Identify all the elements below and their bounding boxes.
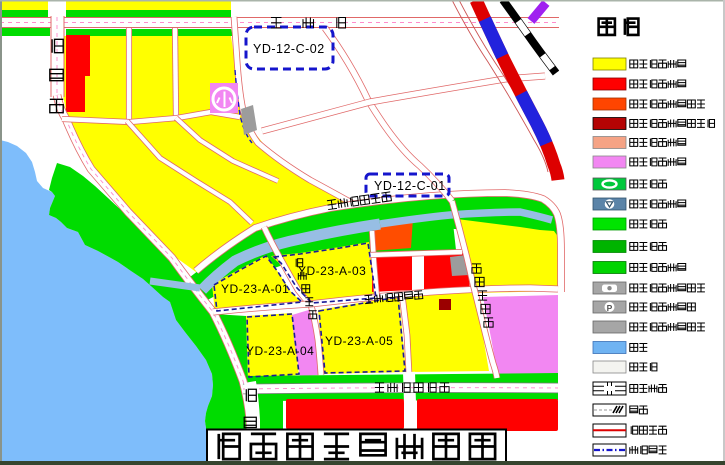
svg-text:P: P: [607, 303, 613, 313]
svg-text:YD-23-A-04: YD-23-A-04: [246, 344, 314, 358]
svg-text:YD-23-A-01: YD-23-A-01: [221, 282, 289, 296]
svg-text:YD-23-A-05: YD-23-A-05: [325, 334, 393, 348]
svg-text:YD-23-A-03: YD-23-A-03: [298, 264, 366, 278]
svg-text:YD-12-C-02: YD-12-C-02: [253, 42, 325, 56]
svg-text:YD-12-C-01: YD-12-C-01: [374, 179, 446, 193]
